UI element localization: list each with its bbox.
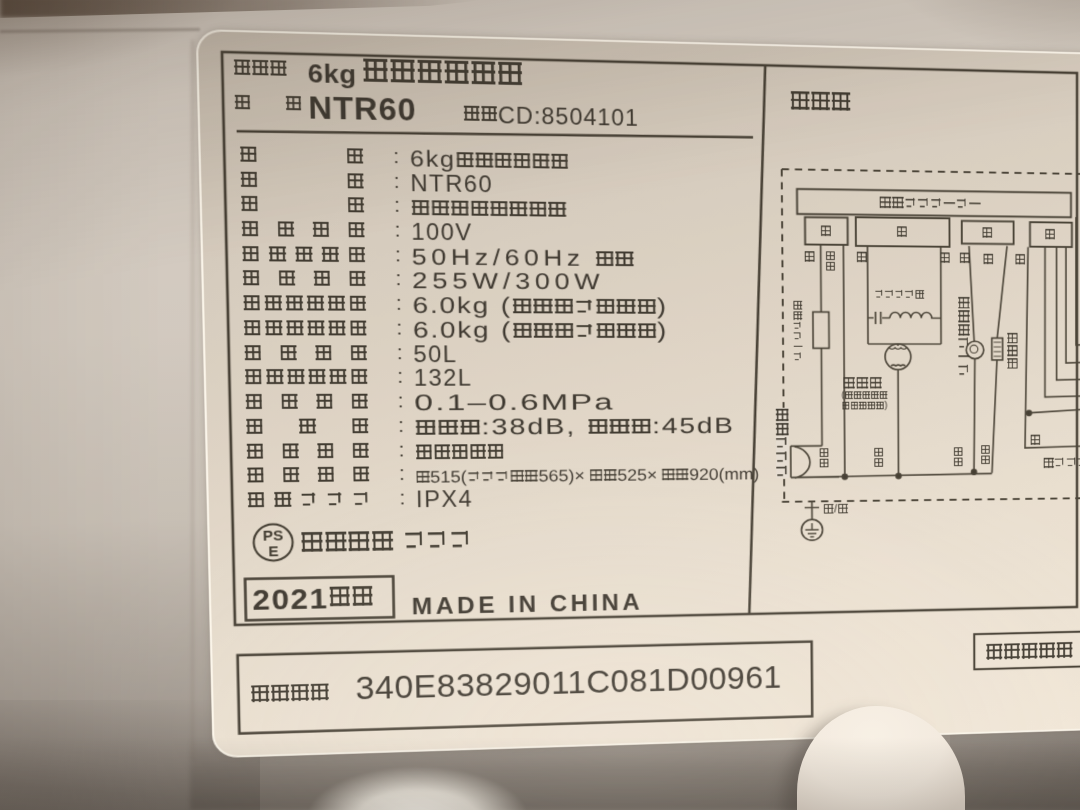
svg-text:E: E	[268, 544, 279, 560]
svg-text:PS: PS	[263, 528, 284, 544]
